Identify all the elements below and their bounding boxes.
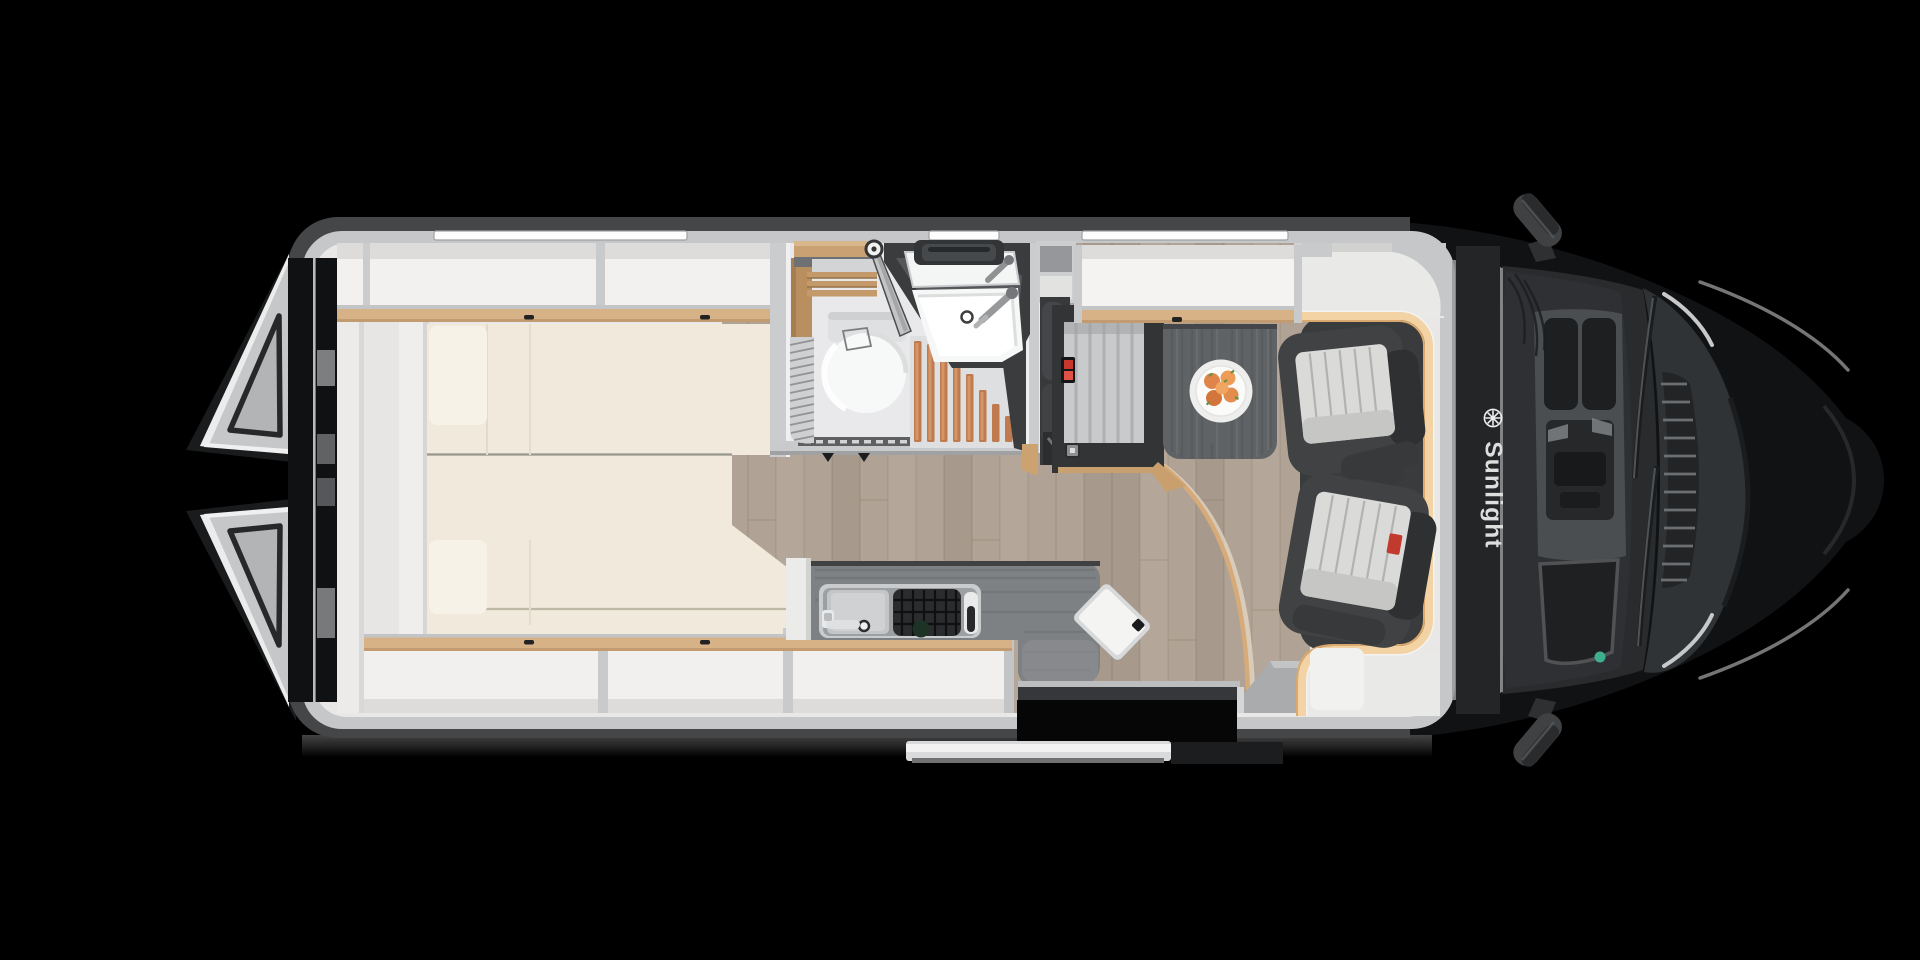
- svg-text:Sunlight: Sunlight: [1480, 441, 1507, 549]
